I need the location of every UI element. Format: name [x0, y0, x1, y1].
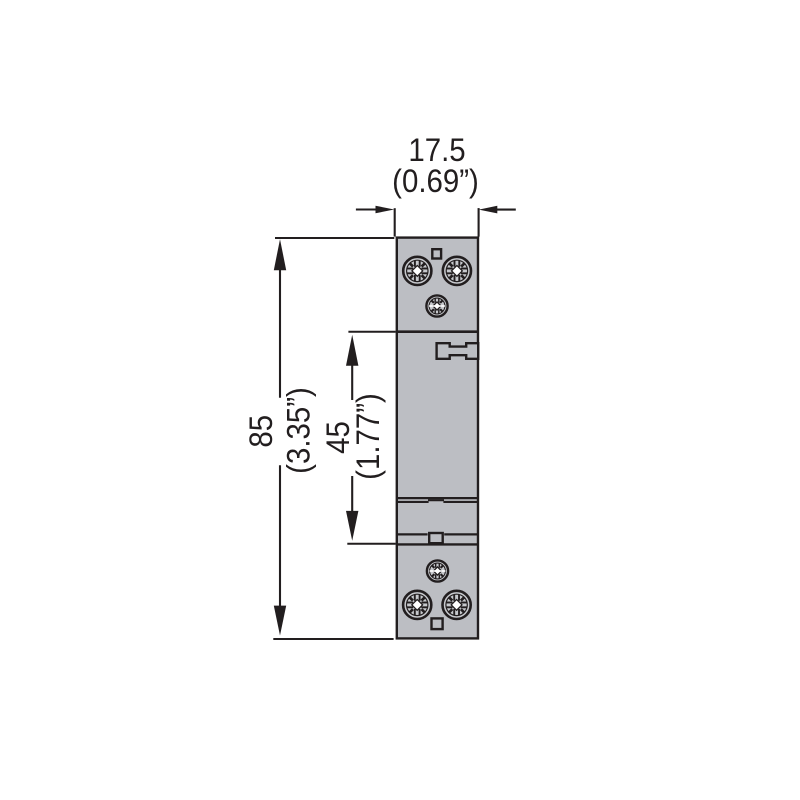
svg-text:(0.69”): (0.69”) [392, 163, 479, 199]
svg-text:85: 85 [243, 415, 279, 448]
svg-text:(3.35”): (3.35”) [280, 387, 316, 474]
svg-text:(1.77”): (1.77”) [350, 393, 386, 480]
